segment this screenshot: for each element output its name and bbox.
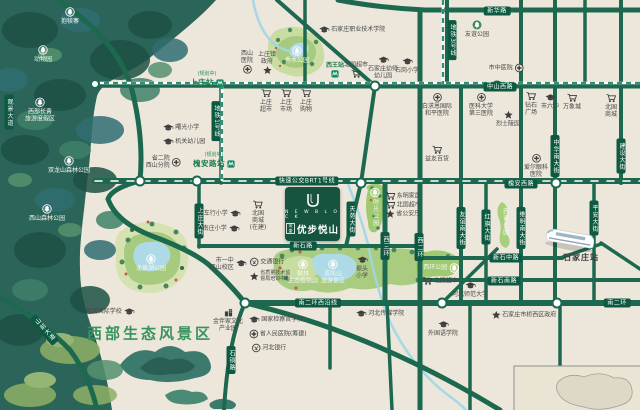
star-icon	[262, 66, 271, 75]
greentree-icon	[472, 20, 482, 30]
road-label: 新华路	[484, 7, 511, 16]
poi: 龙泉湖公园	[136, 254, 166, 272]
poi: 外国语学院	[428, 321, 458, 337]
bldg-icon	[223, 308, 232, 317]
poi-label: 市六中	[541, 103, 559, 110]
poi-label: 石家庄站	[563, 253, 599, 263]
poi: 益友百货	[425, 145, 449, 162]
brand-logo: 荣盛	[286, 223, 295, 235]
cart-icon	[253, 200, 263, 209]
poi-label: 北国 商城	[605, 104, 617, 118]
poi: 石岗小学	[395, 58, 419, 74]
cart-icon	[606, 94, 616, 103]
poi-label: 西山森林公园	[29, 215, 65, 222]
road-label: 快速公交BRT1号线	[275, 177, 338, 186]
cart-icon	[281, 89, 291, 98]
poi-label: 上庄 购物	[300, 99, 312, 113]
hosp-icon	[249, 330, 258, 339]
poi-label: 西环公园	[423, 264, 447, 271]
poi: 北国 商城 (在建)	[250, 200, 267, 232]
poi-label: 南庄小学	[203, 225, 227, 232]
poi-label: 烈士陵园	[496, 120, 520, 127]
poi-label: 双龙山森林公园	[48, 167, 90, 174]
poi-label: 石家庄市桥西区政府	[502, 311, 556, 318]
poi: 友谊公园	[465, 20, 489, 38]
poi-label: 交通银行	[260, 258, 284, 265]
star-icon	[492, 311, 501, 320]
poi-label: 益友百货	[425, 155, 449, 162]
poi: 振头 小学	[356, 256, 368, 279]
poi-label: 友谊公园	[465, 31, 489, 38]
road-label: 地铁3号线	[448, 20, 457, 60]
hosp-icon	[242, 65, 251, 74]
project-name-cn: 优步悦山	[297, 222, 339, 236]
poi: 双龙山森林公园	[48, 156, 90, 174]
poi-label: 机关幼儿园	[175, 138, 205, 145]
cart-icon	[385, 201, 395, 210]
school-icon	[437, 321, 448, 329]
hosp-icon	[531, 154, 540, 163]
poi: 北国超市	[385, 201, 421, 210]
road-label: 维明南大街	[517, 207, 526, 249]
poi: 市中医院	[489, 64, 524, 73]
cart-icon	[567, 93, 577, 102]
school-icon	[319, 26, 330, 34]
poi: 省二院 西山分院	[146, 155, 181, 169]
poi-label: 万象城	[563, 103, 581, 110]
school-icon	[377, 56, 388, 64]
bank-icon	[250, 258, 259, 267]
school-icon	[123, 308, 134, 316]
poi-label: 省质量技术监 督局培训中心	[260, 270, 290, 282]
poi-label: 抱犊寨	[61, 18, 79, 25]
poi: 北国超市	[344, 61, 368, 78]
poi-label: 北国 商城 (在建)	[250, 210, 267, 232]
poi: 西王站	[326, 62, 344, 78]
poi: 金伴家文化 产业园	[213, 308, 243, 332]
poi: 西青公园	[501, 208, 508, 236]
poi: 国家检察官学院	[249, 316, 304, 324]
poi-label: 西部长青 旅游度假区	[25, 108, 55, 122]
road-label: 观景大道	[5, 95, 14, 130]
poi-label: 秀水公园	[285, 57, 309, 64]
poi-label: 省人民医院(筹建)	[260, 330, 307, 337]
poi-label: 龙泉湖公园	[136, 265, 166, 272]
road-label: 中华南大街	[551, 135, 560, 177]
poi: 北国 商城	[605, 94, 617, 118]
school-icon	[544, 94, 555, 102]
poi-label: 西山 医院	[241, 50, 253, 64]
poi-label: 河北传媒学院	[368, 310, 404, 317]
poi: 北国超市	[422, 277, 458, 286]
poi-label: 河北银行	[262, 344, 286, 351]
road-label: 南二环西沿线	[295, 299, 341, 308]
poi: 双凤山 旅游景区	[321, 259, 345, 284]
school-icon	[235, 260, 246, 268]
bank-icon	[252, 344, 261, 353]
road-label: 地铁1号线	[212, 101, 221, 141]
poi: 枫林 生态植物园	[288, 259, 318, 284]
poi-label: 省二院 西山分院	[146, 155, 170, 169]
ringtree-icon	[35, 97, 45, 107]
poi: 大车行小学	[198, 210, 241, 218]
poi-label: 西青公园	[501, 208, 508, 236]
poi-label: 河北师范大学	[452, 291, 488, 298]
poi: 南庄小学	[203, 225, 240, 233]
star-icon	[503, 110, 512, 119]
train-icon	[545, 228, 595, 254]
ringtree-icon	[292, 46, 302, 56]
ringtree-icon	[64, 156, 74, 166]
poi-label: 上庄 市场	[280, 99, 292, 113]
road-label: 南二环	[604, 299, 631, 308]
poi: 机关幼儿园	[163, 138, 206, 146]
poi-label: 上庄 超市	[260, 99, 272, 113]
poi-label: 大车行小学	[198, 210, 228, 217]
poi: 万象城	[563, 93, 581, 110]
poi-label: 市中医院	[489, 64, 513, 71]
school-icon	[163, 124, 174, 132]
poi-label: 时光公园	[371, 199, 378, 227]
road-label: 西三环	[381, 232, 390, 260]
ringtree-icon	[370, 188, 380, 198]
poi: 烈士陵园	[496, 110, 520, 127]
mountain-illustrations	[120, 346, 236, 409]
poi: 省质量技术监 督局培训中心	[250, 270, 291, 282]
road-label: 新石中路	[489, 254, 522, 263]
poi: 西环公园	[423, 263, 459, 273]
poi: 钻石 广场	[525, 92, 537, 116]
poi: 石家庄职业技术学院	[319, 26, 386, 34]
cart-icon	[432, 145, 442, 154]
poi-label: 金伴家文化 产业园	[213, 318, 243, 332]
poi: 抱犊寨	[61, 7, 79, 25]
location-map-canvas: 西部生态风景区 N E W B L O C K 荣盛 优步悦山 新华路中山西路快…	[0, 0, 640, 410]
scenic-area-title: 西部生态风景区	[87, 323, 213, 344]
school-icon	[401, 58, 412, 66]
school-icon	[356, 256, 367, 264]
star-icon	[386, 210, 395, 219]
poi: 上庄 超市	[260, 89, 272, 113]
poi: 西部长青 旅游度假区	[25, 97, 55, 122]
poi: 市一中 西山校区	[210, 257, 247, 271]
station-name: 槐安路站	[193, 158, 225, 169]
poi-label: 曙光小学	[175, 124, 199, 131]
poi: 爱尔眼科 医院	[524, 154, 548, 178]
poi-label: 东明家居	[397, 192, 421, 199]
station-name: 上庄站	[190, 77, 214, 88]
metro-station-label: (规划中)槐安路站	[193, 153, 235, 169]
hosp-icon	[432, 93, 441, 102]
cart-icon	[385, 192, 395, 201]
metro-station-label: (规划中)上庄站	[190, 72, 224, 88]
poi: 石家庄站	[563, 253, 599, 263]
poi: 上庄 购物	[300, 89, 312, 113]
school-icon	[464, 282, 475, 290]
poi: 上庄镇 政府	[258, 51, 276, 75]
poi: 市六中	[541, 94, 559, 110]
poi-label: 石家庄幼师 幼儿园	[368, 65, 398, 79]
road-label: 上庄大街	[195, 204, 204, 239]
poi-label: 爱尔眼科 医院	[524, 164, 548, 178]
inset-region-map	[514, 366, 640, 410]
road-label: 新石南路	[487, 277, 520, 286]
school-icon	[356, 310, 367, 318]
road-label: 槐安西路	[504, 180, 537, 189]
ringtree-icon	[65, 7, 75, 17]
poi-label: 动物园	[34, 56, 52, 63]
road-label: 平安大街	[590, 201, 599, 236]
hosp-icon	[476, 93, 485, 102]
poi-label: 国家检察官学院	[261, 316, 303, 323]
school-icon	[229, 210, 240, 218]
poi: 白求恩国际 和平医院	[422, 93, 452, 117]
project-name-en: N E W B L O C K	[285, 210, 340, 220]
road-label: 建设大街	[617, 139, 626, 174]
poi: 石家庄幼师 幼儿园	[368, 56, 398, 79]
poi-label: 振头 小学	[356, 265, 368, 279]
poi: 医科大学 第三医院	[469, 93, 493, 117]
poi-label: 外国语学院	[428, 330, 458, 337]
ringtree-icon	[449, 263, 459, 273]
poi: 省公安厅	[386, 210, 421, 219]
poi-label: 北国超市	[344, 61, 368, 68]
cart-icon	[526, 92, 536, 101]
poi-label: 石岗小学	[395, 67, 419, 74]
poi-label: 省公安厅	[396, 210, 420, 217]
poi: 动物园	[34, 45, 52, 63]
road-label: 石铜路	[227, 346, 236, 374]
hosp-icon	[514, 64, 523, 73]
metro-icon	[227, 160, 235, 168]
poi-label: 西王站	[326, 62, 344, 69]
ringtree-icon	[146, 254, 156, 264]
poi-label: 上庄镇 政府	[258, 51, 276, 65]
cart-icon	[301, 89, 311, 98]
cart-icon	[351, 70, 361, 79]
ringtree-icon	[38, 45, 48, 55]
poi-label: 医科大学 第三医院	[469, 103, 493, 117]
poi: 上庄 市场	[280, 89, 292, 113]
poi: 西山 医院	[241, 50, 253, 74]
poi: 时光公园	[370, 188, 380, 227]
poi: 西山森林公园	[29, 204, 65, 222]
poi-label: 北国超市	[434, 277, 458, 284]
poi: 曙光小学	[163, 124, 200, 132]
poi-label: 钻石 广场	[525, 102, 537, 116]
poi: 河北传媒学院	[356, 310, 405, 318]
road-label: 红旗大街	[482, 210, 491, 245]
cart-icon	[261, 89, 271, 98]
poi: 秀水公园	[285, 46, 309, 64]
road-label: 西二环	[415, 233, 424, 261]
ringtree-icon	[298, 259, 308, 269]
school-icon	[249, 316, 260, 324]
poi-label: 市一中 西山校区	[210, 257, 234, 271]
project-logo-u-icon	[305, 193, 321, 208]
poi: 石家庄市桥西区政府	[492, 311, 557, 320]
poi: 交通银行	[250, 258, 285, 267]
ringtree-icon	[328, 259, 338, 269]
star-icon	[250, 272, 259, 281]
project-logo-card: N E W B L O C K 荣盛 优步悦山	[285, 187, 340, 241]
poi-label: 石家庄职业技术学院	[331, 26, 385, 33]
road-label: 新石路	[290, 242, 317, 251]
school-icon	[228, 225, 239, 233]
hosp-icon	[171, 158, 180, 167]
poi-label: 双凤山 旅游景区	[321, 270, 345, 284]
cart-icon	[422, 277, 432, 286]
road-label: 友谊南大街	[457, 207, 466, 249]
poi: 蓝湾国际学校	[86, 308, 135, 316]
poi: 河北银行	[252, 344, 287, 353]
poi: 东明家居	[385, 192, 421, 201]
poi-label: 枫林 生态植物园	[288, 270, 318, 284]
poi-label: 北国超市	[397, 201, 421, 208]
road-label: 天苑大街	[347, 202, 356, 237]
ringtree-icon	[42, 204, 52, 214]
poi-label: 蓝湾国际学校	[86, 308, 122, 315]
school-icon	[163, 138, 174, 146]
metro-icon	[331, 70, 339, 78]
road-label: 中山西路	[483, 83, 516, 92]
metro-icon	[216, 79, 224, 87]
poi-label: 白求恩国际 和平医院	[422, 103, 452, 117]
poi: 省人民医院(筹建)	[249, 330, 306, 339]
